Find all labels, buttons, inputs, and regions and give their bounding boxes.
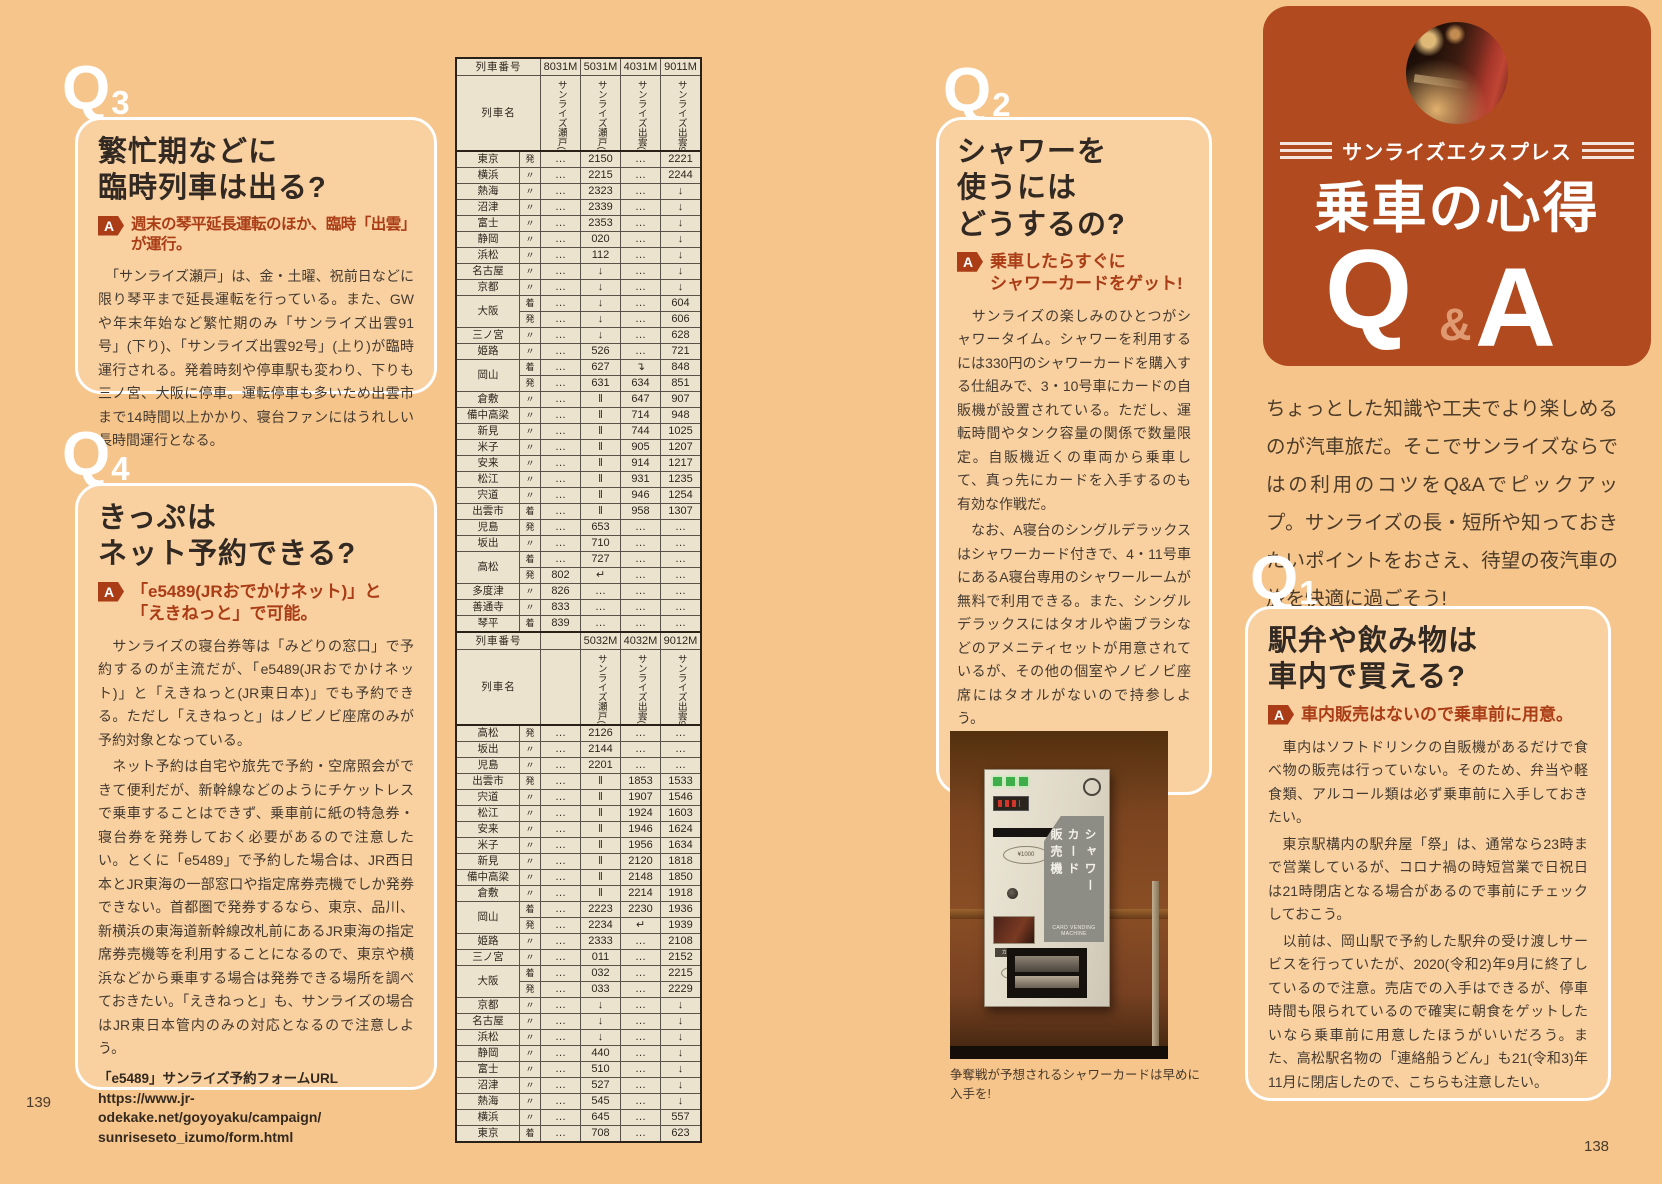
time-cell: 1818 bbox=[661, 854, 702, 870]
train-name-cell: サンライズ出雲(下り) bbox=[621, 76, 661, 152]
answer-chip-icon: A bbox=[98, 582, 124, 602]
time-cell: 1307 bbox=[661, 504, 702, 520]
arrival-departure-cell: 発 bbox=[520, 312, 541, 328]
timetable-row: 横浜〃…2215…2244 bbox=[456, 168, 701, 184]
time-cell: 802 bbox=[541, 568, 581, 584]
time-cell: … bbox=[541, 1126, 581, 1143]
time-cell: … bbox=[541, 870, 581, 886]
station-cell: 新見 bbox=[456, 854, 520, 870]
time-cell: … bbox=[541, 790, 581, 806]
time-cell: 1254 bbox=[661, 488, 702, 504]
time-cell: … bbox=[621, 725, 661, 742]
time-cell: ‖ bbox=[581, 440, 621, 456]
time-cell: ‖ bbox=[581, 838, 621, 854]
q1-title: 駅弁や飲み物は 車内で買える? bbox=[1268, 623, 1588, 696]
arrival-departure-cell: 〃 bbox=[520, 854, 541, 870]
timetable-row: 富士〃…510…↓ bbox=[456, 1062, 701, 1078]
arrival-departure-cell: 〃 bbox=[520, 488, 541, 504]
arrival-departure-cell: 発 bbox=[520, 151, 541, 168]
time-cell: 848 bbox=[661, 360, 702, 376]
time-cell: … bbox=[621, 536, 661, 552]
time-cell: 1853 bbox=[621, 774, 661, 790]
time-cell: … bbox=[621, 934, 661, 950]
time-cell: ↓ bbox=[661, 1094, 702, 1110]
time-cell: ↓ bbox=[661, 998, 702, 1014]
time-cell: … bbox=[541, 886, 581, 902]
time-cell: 033 bbox=[581, 982, 621, 998]
time-cell: 2144 bbox=[581, 742, 621, 758]
arrival-departure-cell: 〃 bbox=[520, 328, 541, 344]
time-cell: … bbox=[621, 982, 661, 998]
timetable-row: 坂出〃…2144…… bbox=[456, 742, 701, 758]
amount-display bbox=[993, 796, 1029, 811]
timetable-row: 出雲市着…‖9581307 bbox=[456, 504, 701, 520]
time-cell: … bbox=[621, 184, 661, 200]
output-tray bbox=[1007, 948, 1087, 998]
timetable-row: 琴平着839……… bbox=[456, 616, 701, 633]
station-cell: 松江 bbox=[456, 806, 520, 822]
station-cell: 備中高梁 bbox=[456, 870, 520, 886]
timetable-row: 宍道〃…‖9461254 bbox=[456, 488, 701, 504]
time-cell: … bbox=[621, 600, 661, 616]
time-cell: … bbox=[541, 982, 581, 998]
station-cell: 宍道 bbox=[456, 790, 520, 806]
time-cell: … bbox=[581, 616, 621, 633]
masthead-qa: Q & A bbox=[1263, 6, 1651, 366]
arrival-departure-cell: 〃 bbox=[520, 1110, 541, 1126]
timetable-row: 東京発…2150…2221 bbox=[456, 151, 701, 168]
time-cell: ‖ bbox=[581, 886, 621, 902]
page-number-right: 138 bbox=[1584, 1138, 1609, 1155]
arrival-departure-cell: 〃 bbox=[520, 1030, 541, 1046]
q2-marker: Q2 bbox=[943, 60, 1011, 122]
time-cell: … bbox=[661, 616, 702, 633]
arrival-departure-cell: 着 bbox=[520, 966, 541, 982]
time-cell: 907 bbox=[661, 392, 702, 408]
time-cell: … bbox=[621, 344, 661, 360]
arrival-departure-cell: 着 bbox=[520, 552, 541, 568]
station-cell: 京都 bbox=[456, 998, 520, 1014]
station-cell: 善通寺 bbox=[456, 600, 520, 616]
time-cell: 1235 bbox=[661, 472, 702, 488]
station-cell: 熱海 bbox=[456, 184, 520, 200]
timetable-row: 三ノ宮〃…011…2152 bbox=[456, 950, 701, 966]
time-cell: … bbox=[661, 552, 702, 568]
time-cell: … bbox=[621, 1110, 661, 1126]
time-cell: … bbox=[541, 854, 581, 870]
station-cell: 三ノ宮 bbox=[456, 328, 520, 344]
station-cell: 新見 bbox=[456, 424, 520, 440]
station-cell: 児島 bbox=[456, 758, 520, 774]
arrival-departure-cell: 〃 bbox=[520, 280, 541, 296]
time-cell: 744 bbox=[621, 424, 661, 440]
time-cell: 2323 bbox=[581, 184, 621, 200]
station-cell: 名古屋 bbox=[456, 264, 520, 280]
timetable-row: 大阪着…032…2215 bbox=[456, 966, 701, 982]
time-cell: … bbox=[621, 1078, 661, 1094]
timetable-row: 児島発…653…… bbox=[456, 520, 701, 536]
timetable-row: 京都〃…↓…↓ bbox=[456, 998, 701, 1014]
train-number-cell: 4032M bbox=[621, 632, 661, 650]
time-cell: … bbox=[621, 950, 661, 966]
timetable-row: 姫路〃…2333…2108 bbox=[456, 934, 701, 950]
station-cell: 児島 bbox=[456, 520, 520, 536]
time-cell: … bbox=[541, 725, 581, 742]
time-cell: … bbox=[661, 758, 702, 774]
time-cell: … bbox=[621, 520, 661, 536]
arrival-departure-cell: 〃 bbox=[520, 232, 541, 248]
q2-body-1: サンライズの楽しみのひとつがシャワータイム。シャワーを利用するには330円のシャ… bbox=[957, 305, 1191, 517]
time-cell: 948 bbox=[661, 408, 702, 424]
arrival-departure-cell: 着 bbox=[520, 1126, 541, 1143]
arrival-departure-cell: 〃 bbox=[520, 184, 541, 200]
arrival-departure-cell: 〃 bbox=[520, 168, 541, 184]
timetable-row: 東京着…708…623 bbox=[456, 1126, 701, 1143]
q4-title: きっぷは ネット予約できる? bbox=[98, 500, 414, 573]
time-cell: … bbox=[661, 725, 702, 742]
arrival-departure-cell: 〃 bbox=[520, 200, 541, 216]
timetable-row: 岡山着…222322301936 bbox=[456, 902, 701, 918]
q2-answer: A 乗車したらすぐに シャワーカードをゲット! bbox=[957, 251, 1191, 295]
time-cell: 2108 bbox=[661, 934, 702, 950]
time-cell: 527 bbox=[581, 1078, 621, 1094]
station-cell: 東京 bbox=[456, 1126, 520, 1143]
q3-panel: 繁忙期などに 臨時列車は出る? A 週末の琴平延長運転のほか、臨時「出雲」が運行… bbox=[75, 117, 437, 394]
arrival-departure-cell: 〃 bbox=[520, 998, 541, 1014]
time-cell: 557 bbox=[661, 1110, 702, 1126]
arrival-departure-cell: 〃 bbox=[520, 886, 541, 902]
station-cell: 京都 bbox=[456, 280, 520, 296]
time-cell: 2221 bbox=[661, 151, 702, 168]
arrival-departure-cell: 〃 bbox=[520, 600, 541, 616]
arrival-departure-cell: 〃 bbox=[520, 1046, 541, 1062]
time-cell: 1918 bbox=[661, 886, 702, 902]
station-cell: 宍道 bbox=[456, 488, 520, 504]
arrival-departure-cell: 着 bbox=[520, 296, 541, 312]
time-cell: 1603 bbox=[661, 806, 702, 822]
q1-marker: Q1 bbox=[1250, 548, 1318, 610]
time-cell: 011 bbox=[581, 950, 621, 966]
card-sample-image bbox=[993, 916, 1035, 944]
timetable-row: 備中高梁〃…‖714948 bbox=[456, 408, 701, 424]
arrival-departure-cell: 発 bbox=[520, 725, 541, 742]
timetable-row: 大阪着…↓…604 bbox=[456, 296, 701, 312]
time-cell: ↓ bbox=[661, 200, 702, 216]
station-cell: 坂出 bbox=[456, 536, 520, 552]
time-cell: … bbox=[661, 520, 702, 536]
station-cell: 安来 bbox=[456, 822, 520, 838]
coin-slot-icon bbox=[1007, 888, 1018, 899]
time-cell: … bbox=[621, 966, 661, 982]
time-cell: … bbox=[541, 248, 581, 264]
station-cell: 備中高梁 bbox=[456, 408, 520, 424]
time-cell: … bbox=[621, 168, 661, 184]
time-cell: 839 bbox=[541, 616, 581, 633]
header-label-cell: 列車番号 bbox=[456, 632, 541, 650]
time-cell: 1207 bbox=[661, 440, 702, 456]
time-cell: 2120 bbox=[621, 854, 661, 870]
bill-note-label: ¥1000 bbox=[1003, 846, 1049, 864]
train-number-cell: 5031M bbox=[581, 58, 621, 76]
time-cell: 112 bbox=[581, 248, 621, 264]
time-cell: 647 bbox=[621, 392, 661, 408]
q2-panel: シャワーを 使うには どうするの? A 乗車したらすぐに シャワーカードをゲット… bbox=[936, 117, 1212, 795]
train-name-cell: サンライズ瀬戸(下り) bbox=[581, 76, 621, 152]
time-cell: ↓ bbox=[661, 232, 702, 248]
arrival-departure-cell: 発 bbox=[520, 918, 541, 934]
timetable-row: 多度津〃826……… bbox=[456, 584, 701, 600]
arrival-departure-cell: 発 bbox=[520, 568, 541, 584]
q4-panel: きっぷは ネット予約できる? A 「e5489(JRおでかけネット)」と 「えき… bbox=[75, 483, 437, 1090]
q4-body-1: サンライズの寝台券等は「みどりの窓口」で予約するのが主流だが、「e5489(JR… bbox=[98, 635, 414, 753]
time-cell: ↓ bbox=[581, 280, 621, 296]
time-cell: 2229 bbox=[661, 982, 702, 998]
time-cell: … bbox=[541, 168, 581, 184]
q1-body-1: 車内はソフトドリンクの自販機があるだけで食べ物の販売は行っていない。そのため、弁… bbox=[1268, 736, 1588, 830]
station-cell: 岡山 bbox=[456, 902, 520, 934]
arrival-departure-cell: 着 bbox=[520, 504, 541, 520]
time-cell: … bbox=[541, 918, 581, 934]
time-cell: 1850 bbox=[661, 870, 702, 886]
arrival-departure-cell: 着 bbox=[520, 360, 541, 376]
time-cell: ‖ bbox=[581, 806, 621, 822]
time-cell: ‖ bbox=[581, 774, 621, 790]
time-cell: … bbox=[621, 1126, 661, 1143]
time-cell: 2215 bbox=[661, 966, 702, 982]
q4-body-2: ネット予約は自宅や旅先で予約・空席照会ができて便利だが、新幹線などのようにチケッ… bbox=[98, 755, 414, 1061]
train-name-row: 列車名サンライズ瀬戸(下り)サンライズ瀬戸(下り)サンライズ出雲(下り)サンライ… bbox=[456, 76, 701, 152]
arrival-departure-cell: 発 bbox=[520, 982, 541, 998]
arrival-departure-cell: 〃 bbox=[520, 806, 541, 822]
magazine-spread: Q3 繁忙期などに 臨時列車は出る? A 週末の琴平延長運転のほか、臨時「出雲」… bbox=[0, 0, 1662, 1184]
header-label-cell: 列車名 bbox=[456, 650, 541, 726]
time-cell: 1533 bbox=[661, 774, 702, 790]
time-cell: … bbox=[621, 280, 661, 296]
time-cell: 1939 bbox=[661, 918, 702, 934]
arrival-departure-cell: 〃 bbox=[520, 344, 541, 360]
time-cell: … bbox=[621, 312, 661, 328]
time-cell: 1634 bbox=[661, 838, 702, 854]
station-cell: 琴平 bbox=[456, 616, 520, 633]
time-cell: … bbox=[541, 440, 581, 456]
timetable-row: 児島〃…2201…… bbox=[456, 758, 701, 774]
time-cell: … bbox=[541, 902, 581, 918]
q3-answer: A 週末の琴平延長運転のほか、臨時「出雲」が運行。 bbox=[98, 215, 414, 255]
train-name-cell: サンライズ出雲92号 bbox=[661, 650, 702, 726]
time-cell: ↓ bbox=[581, 264, 621, 280]
time-cell: 2244 bbox=[661, 168, 702, 184]
q4-marker: Q4 bbox=[62, 424, 130, 486]
q2-title: シャワーを 使うには どうするの? bbox=[957, 134, 1191, 243]
station-cell: 大阪 bbox=[456, 296, 520, 328]
time-cell: … bbox=[621, 616, 661, 633]
time-cell: 020 bbox=[581, 232, 621, 248]
header-label-cell: 列車名 bbox=[456, 76, 541, 152]
time-cell: ‖ bbox=[581, 472, 621, 488]
timetable-row: 姫路〃…526…721 bbox=[456, 344, 701, 360]
time-cell: … bbox=[541, 1110, 581, 1126]
timetable-row: 富士〃…2353…↓ bbox=[456, 216, 701, 232]
time-cell: … bbox=[661, 584, 702, 600]
handrail bbox=[1152, 881, 1159, 1051]
time-cell: 2148 bbox=[621, 870, 661, 886]
timetable-row: 坂出〃…710…… bbox=[456, 536, 701, 552]
arrival-departure-cell: 〃 bbox=[520, 1094, 541, 1110]
timetable-row: 安来〃…‖9141217 bbox=[456, 456, 701, 472]
station-cell: 沼津 bbox=[456, 200, 520, 216]
time-cell: … bbox=[541, 264, 581, 280]
reservation-url: sunriseseto_izumo/form.html bbox=[98, 1128, 414, 1148]
machine-title-vertical: シャワー カード 販売機 bbox=[1047, 828, 1098, 896]
time-cell: … bbox=[581, 600, 621, 616]
machine-title-panel: シャワー カード 販売機 CARD VENDING MACHINE bbox=[1044, 816, 1104, 942]
time-cell: … bbox=[621, 232, 661, 248]
time-cell: … bbox=[541, 806, 581, 822]
time-cell: … bbox=[541, 184, 581, 200]
time-cell: … bbox=[621, 1014, 661, 1030]
time-cell: … bbox=[621, 1030, 661, 1046]
time-cell: 833 bbox=[541, 600, 581, 616]
arrival-departure-cell: 〃 bbox=[520, 934, 541, 950]
masthead: サンライズエクスプレス 乗車の心得 Q & A bbox=[1263, 6, 1651, 366]
time-cell: 714 bbox=[621, 408, 661, 424]
station-cell: 出雲市 bbox=[456, 774, 520, 790]
timetable-row: 熱海〃…2323…↓ bbox=[456, 184, 701, 200]
station-cell: 米子 bbox=[456, 440, 520, 456]
train-number-cell: 9012M bbox=[661, 632, 702, 650]
timetable-row: 安来〃…‖19461624 bbox=[456, 822, 701, 838]
timetable-row: 名古屋〃…↓…↓ bbox=[456, 264, 701, 280]
time-cell: … bbox=[541, 344, 581, 360]
time-cell: 604 bbox=[661, 296, 702, 312]
train-name-row: 列車名サンライズ瀬戸(上り)サンライズ出雲(上り)サンライズ出雲92号 bbox=[456, 650, 701, 726]
time-cell: … bbox=[541, 552, 581, 568]
time-cell: 710 bbox=[581, 536, 621, 552]
station-cell: 横浜 bbox=[456, 1110, 520, 1126]
time-cell: … bbox=[621, 552, 661, 568]
time-cell: … bbox=[621, 328, 661, 344]
shower-logo-icon bbox=[1083, 778, 1101, 796]
timetable-row: 善通寺〃833……… bbox=[456, 600, 701, 616]
time-cell: … bbox=[541, 424, 581, 440]
time-cell: 1924 bbox=[621, 806, 661, 822]
time-cell: … bbox=[541, 742, 581, 758]
time-cell: 1624 bbox=[661, 822, 702, 838]
timetable-row: 浜松〃…112…↓ bbox=[456, 248, 701, 264]
time-cell: 958 bbox=[621, 504, 661, 520]
q1-panel: 駅弁や飲み物は 車内で買える? A 車内販売はないので乗車前に用意。 車内はソフ… bbox=[1245, 606, 1611, 1101]
arrival-departure-cell: 着 bbox=[520, 902, 541, 918]
time-cell: 2339 bbox=[581, 200, 621, 216]
station-cell: 名古屋 bbox=[456, 1014, 520, 1030]
led-indicators-icon bbox=[993, 777, 1028, 786]
timetable-row: 静岡〃…020…↓ bbox=[456, 232, 701, 248]
arrival-departure-cell: 〃 bbox=[520, 424, 541, 440]
time-cell: … bbox=[541, 950, 581, 966]
time-cell: 631 bbox=[581, 376, 621, 392]
time-cell: … bbox=[541, 296, 581, 312]
arrival-departure-cell: 発 bbox=[520, 520, 541, 536]
time-cell: … bbox=[541, 998, 581, 1014]
time-cell: 1025 bbox=[661, 424, 702, 440]
timetable-row: 米子〃…‖9051207 bbox=[456, 440, 701, 456]
station-cell: 富士 bbox=[456, 216, 520, 232]
station-cell: 浜松 bbox=[456, 248, 520, 264]
time-cell: … bbox=[621, 248, 661, 264]
time-cell: 1956 bbox=[621, 838, 661, 854]
answer-chip-icon: A bbox=[1268, 705, 1294, 725]
time-cell: … bbox=[541, 1030, 581, 1046]
time-cell: … bbox=[541, 216, 581, 232]
reservation-url: https://www.jr-odekake.net/goyoyaku/camp… bbox=[98, 1089, 414, 1128]
timetable-row: 京都〃…↓…↓ bbox=[456, 280, 701, 296]
machine-subtitle: CARD VENDING MACHINE bbox=[1044, 925, 1104, 937]
time-cell: … bbox=[541, 200, 581, 216]
time-cell: … bbox=[541, 151, 581, 168]
page-number-left: 139 bbox=[26, 1094, 51, 1111]
timetable-row: 熱海〃…545…↓ bbox=[456, 1094, 701, 1110]
time-cell: … bbox=[541, 1078, 581, 1094]
time-cell: … bbox=[581, 584, 621, 600]
time-cell: 2223 bbox=[581, 902, 621, 918]
photo-bottom-bar bbox=[950, 1046, 1168, 1059]
station-cell: 浜松 bbox=[456, 1030, 520, 1046]
time-cell: 914 bbox=[621, 456, 661, 472]
time-cell: … bbox=[661, 568, 702, 584]
station-cell: 姫路 bbox=[456, 344, 520, 360]
time-cell: 032 bbox=[581, 966, 621, 982]
timetable-row: 備中高梁〃…‖21481850 bbox=[456, 870, 701, 886]
time-cell: 526 bbox=[581, 344, 621, 360]
train-name-cell: サンライズ出雲(上り) bbox=[621, 650, 661, 726]
time-cell: 627 bbox=[581, 360, 621, 376]
time-cell: 1907 bbox=[621, 790, 661, 806]
station-cell: 倉敷 bbox=[456, 392, 520, 408]
time-cell: … bbox=[541, 934, 581, 950]
timetable-row: 新見〃…‖21201818 bbox=[456, 854, 701, 870]
q3-title: 繁忙期などに 臨時列車は出る? bbox=[98, 134, 414, 207]
time-cell: … bbox=[661, 742, 702, 758]
intro-text: ちょっとした知識や工夫でより楽しめるのが汽車旅だ。そこでサンライズならではの利用… bbox=[1266, 390, 1618, 618]
time-cell: ‖ bbox=[581, 822, 621, 838]
time-cell: … bbox=[541, 536, 581, 552]
time-cell: … bbox=[541, 408, 581, 424]
arrival-departure-cell: 〃 bbox=[520, 758, 541, 774]
time-cell: … bbox=[541, 838, 581, 854]
timetable-row: 浜松〃…↓…↓ bbox=[456, 1030, 701, 1046]
time-cell: … bbox=[541, 312, 581, 328]
time-cell: … bbox=[541, 758, 581, 774]
time-cell: … bbox=[541, 1014, 581, 1030]
arrival-departure-cell: 〃 bbox=[520, 1078, 541, 1094]
arrival-departure-cell: 〃 bbox=[520, 1014, 541, 1030]
time-cell: … bbox=[541, 488, 581, 504]
arrival-departure-cell: 〃 bbox=[520, 248, 541, 264]
train-number-cell: 8031M bbox=[541, 58, 581, 76]
q3-body: 「サンライズ瀬戸」は、金・土曜、祝前日などに限り琴平まで延長運転を行っている。ま… bbox=[98, 265, 414, 453]
station-cell: 大阪 bbox=[456, 966, 520, 998]
arrival-departure-cell: 着 bbox=[520, 616, 541, 633]
timetable-row: 静岡〃…440…↓ bbox=[456, 1046, 701, 1062]
train-number-cell: 9011M bbox=[661, 58, 702, 76]
time-cell: 727 bbox=[581, 552, 621, 568]
photo-caption: 争奪戦が予想されるシャワーカードは早めに入手を! bbox=[950, 1066, 1200, 1104]
q1-answer: A 車内販売はないので乗車前に用意。 bbox=[1268, 704, 1588, 726]
arrival-departure-cell: 〃 bbox=[520, 1062, 541, 1078]
time-cell: 545 bbox=[581, 1094, 621, 1110]
time-cell: 721 bbox=[661, 344, 702, 360]
train-number-row: 列車番号8031M5031M4031M9011M bbox=[456, 58, 701, 76]
